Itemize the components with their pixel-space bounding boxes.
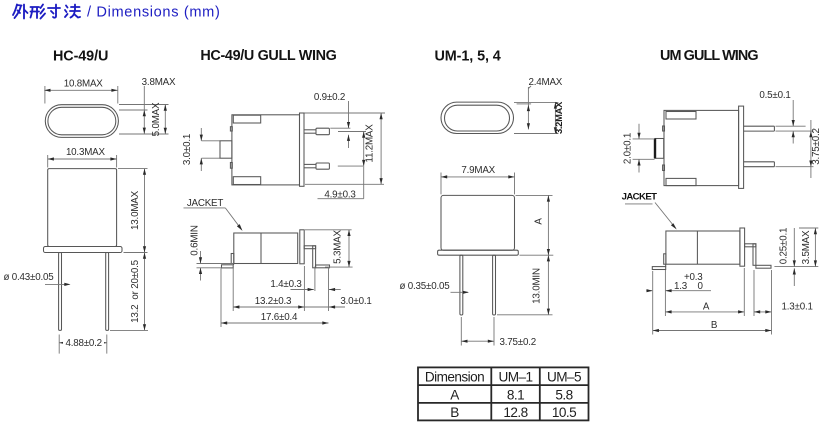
svg-text:3.2MAX: 3.2MAX — [553, 101, 564, 134]
svg-text:ø 0.43±0.05: ø 0.43±0.05 — [3, 272, 54, 283]
svg-text:10.5: 10.5 — [552, 405, 576, 420]
svg-text:JACKET: JACKET — [622, 192, 658, 203]
svg-text:5.3MAX: 5.3MAX — [332, 230, 343, 264]
svg-text:4.88±0.2: 4.88±0.2 — [65, 338, 101, 349]
svg-text:ø 0.35±0.05: ø 0.35±0.05 — [399, 281, 450, 292]
svg-text:0.6MIN: 0.6MIN — [190, 225, 201, 256]
svg-text:17.6±0.4: 17.6±0.4 — [261, 312, 298, 323]
svg-text:13.0MIN: 13.0MIN — [532, 268, 543, 304]
svg-text:5.0MAX: 5.0MAX — [151, 102, 162, 136]
svg-text:UM–5: UM–5 — [547, 370, 581, 385]
svg-text:B: B — [450, 405, 459, 420]
svg-text:3.0±0.1: 3.0±0.1 — [340, 296, 371, 307]
svg-text:2.0±0.1: 2.0±0.1 — [623, 133, 634, 164]
svg-text:B: B — [711, 320, 718, 331]
svg-text:11.2MAX: 11.2MAX — [365, 124, 376, 163]
svg-text:13.2±0.3: 13.2±0.3 — [255, 296, 292, 307]
svg-text:UM–1: UM–1 — [498, 370, 532, 385]
svg-text:3.75±0.2: 3.75±0.2 — [811, 128, 822, 164]
svg-text:3.0±0.1: 3.0±0.1 — [182, 134, 193, 165]
svg-text:13.2 or 20±0.5: 13.2 or 20±0.5 — [130, 259, 141, 323]
svg-text:UM-1, 5, 4: UM-1, 5, 4 — [435, 49, 501, 65]
svg-text:10.3MAX: 10.3MAX — [66, 147, 106, 158]
svg-text:0.5±0.1: 0.5±0.1 — [759, 90, 790, 101]
svg-text:A: A — [534, 218, 545, 225]
svg-text:8.1: 8.1 — [507, 387, 524, 402]
svg-text:2.4MAX: 2.4MAX — [528, 77, 562, 88]
svg-text:13.0MAX: 13.0MAX — [130, 190, 141, 230]
svg-text:UM GULL WING: UM GULL WING — [660, 48, 758, 64]
svg-text:0.25±0.1: 0.25±0.1 — [779, 228, 790, 264]
svg-text:1.3±0.1: 1.3±0.1 — [782, 301, 813, 312]
svg-text:5.8: 5.8 — [555, 387, 572, 402]
svg-text:12.8: 12.8 — [503, 405, 527, 420]
svg-text:HC-49/U: HC-49/U — [53, 49, 108, 65]
svg-text:4.9±0.3: 4.9±0.3 — [324, 189, 356, 200]
svg-text:HC-49/U GULL WING: HC-49/U GULL WING — [200, 48, 336, 64]
svg-text:3.75±0.2: 3.75±0.2 — [500, 337, 536, 348]
svg-text:A: A — [450, 387, 460, 402]
svg-text:/ Dimensions (mm): / Dimensions (mm) — [87, 5, 221, 21]
svg-text:10.8MAX: 10.8MAX — [64, 78, 104, 89]
svg-text:3.8MAX: 3.8MAX — [142, 77, 176, 88]
svg-text:3.5MAX: 3.5MAX — [801, 230, 812, 264]
svg-text:Dimension: Dimension — [425, 370, 484, 385]
svg-text:JACKET: JACKET — [187, 198, 224, 209]
svg-text:0.9±0.2: 0.9±0.2 — [314, 92, 345, 103]
svg-text:A: A — [703, 301, 710, 312]
svg-text:1.4±0.3: 1.4±0.3 — [270, 279, 302, 290]
svg-text:0: 0 — [698, 281, 704, 292]
svg-text:7.9MAX: 7.9MAX — [461, 165, 495, 176]
